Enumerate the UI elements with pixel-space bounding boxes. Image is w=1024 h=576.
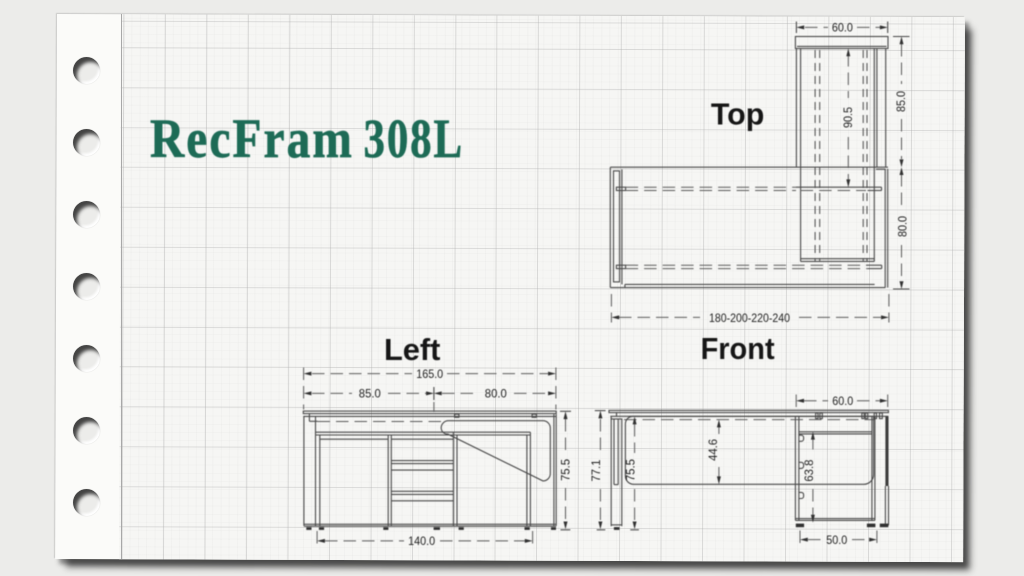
svg-text:63.8: 63.8 (802, 459, 816, 481)
svg-text:85.0: 85.0 (894, 91, 908, 112)
svg-text:50.0: 50.0 (826, 533, 847, 547)
svg-text:165.0: 165.0 (416, 367, 443, 381)
svg-text:Top: Top (711, 96, 765, 131)
svg-text:RecFram: RecFram (150, 109, 354, 170)
svg-text:75.5: 75.5 (558, 459, 572, 481)
svg-text:308L: 308L (364, 108, 464, 169)
svg-text:85.0: 85.0 (359, 387, 381, 401)
svg-text:80.0: 80.0 (485, 387, 507, 401)
svg-text:180-200-220-240: 180-200-220-240 (709, 311, 790, 325)
svg-text:60.0: 60.0 (832, 394, 853, 408)
svg-text:Left: Left (384, 332, 441, 367)
svg-text:80.0: 80.0 (896, 216, 910, 237)
svg-text:140.0: 140.0 (408, 534, 435, 548)
svg-text:75.5: 75.5 (624, 459, 638, 481)
svg-text:77.1: 77.1 (589, 459, 603, 481)
svg-text:90.5: 90.5 (841, 107, 855, 128)
svg-text:60.0: 60.0 (832, 21, 853, 35)
svg-text:44.6: 44.6 (706, 439, 720, 461)
svg-text:Front: Front (701, 331, 775, 366)
